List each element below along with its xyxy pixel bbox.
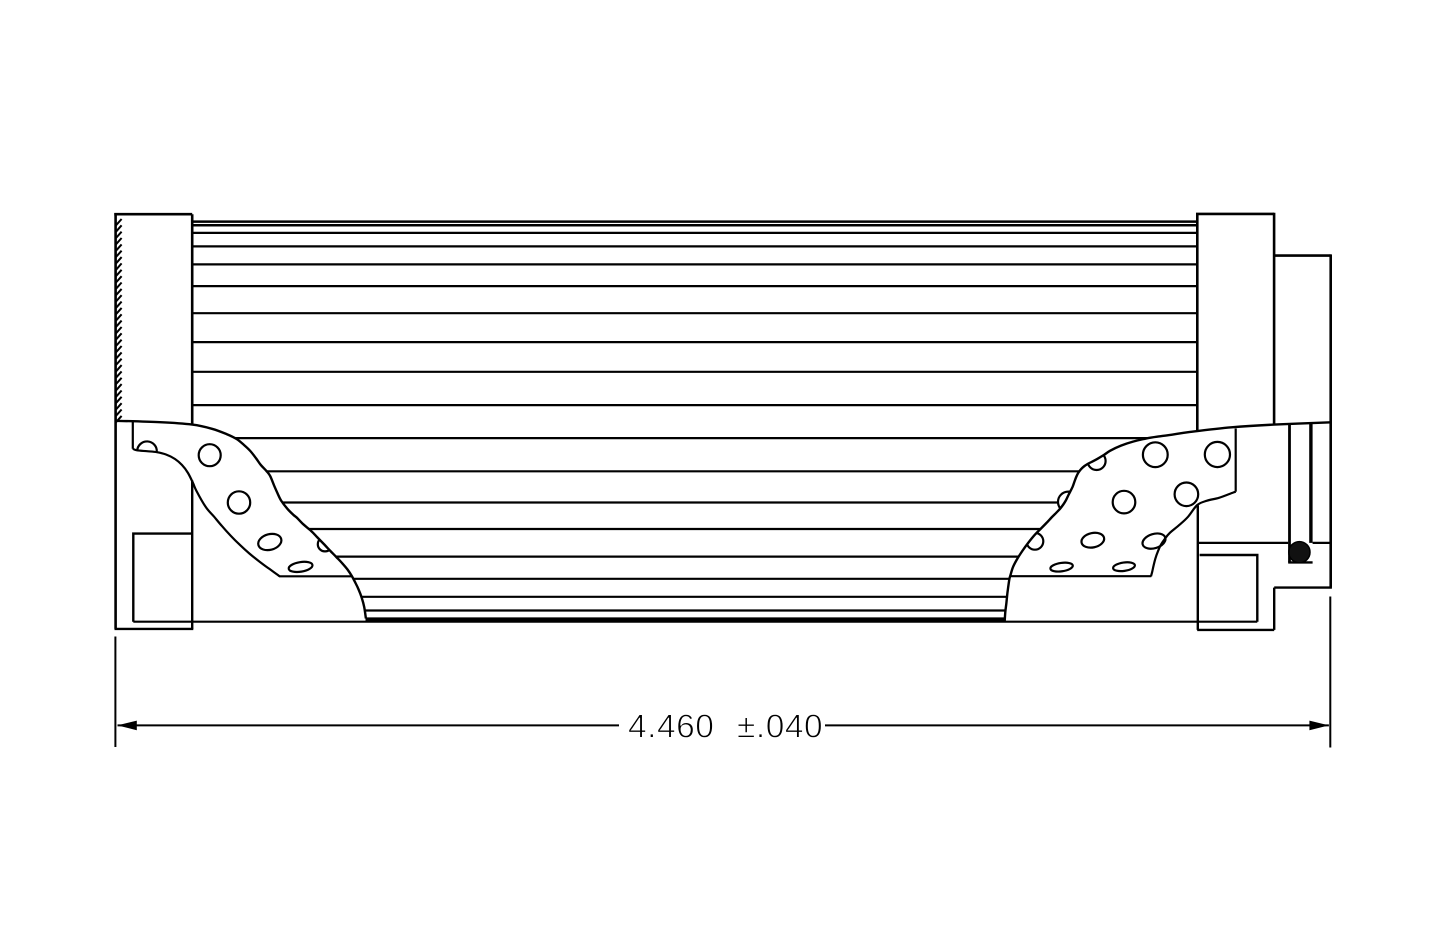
svg-text:±.040: ±.040 (737, 709, 823, 746)
svg-text:4.460: 4.460 (628, 709, 714, 746)
